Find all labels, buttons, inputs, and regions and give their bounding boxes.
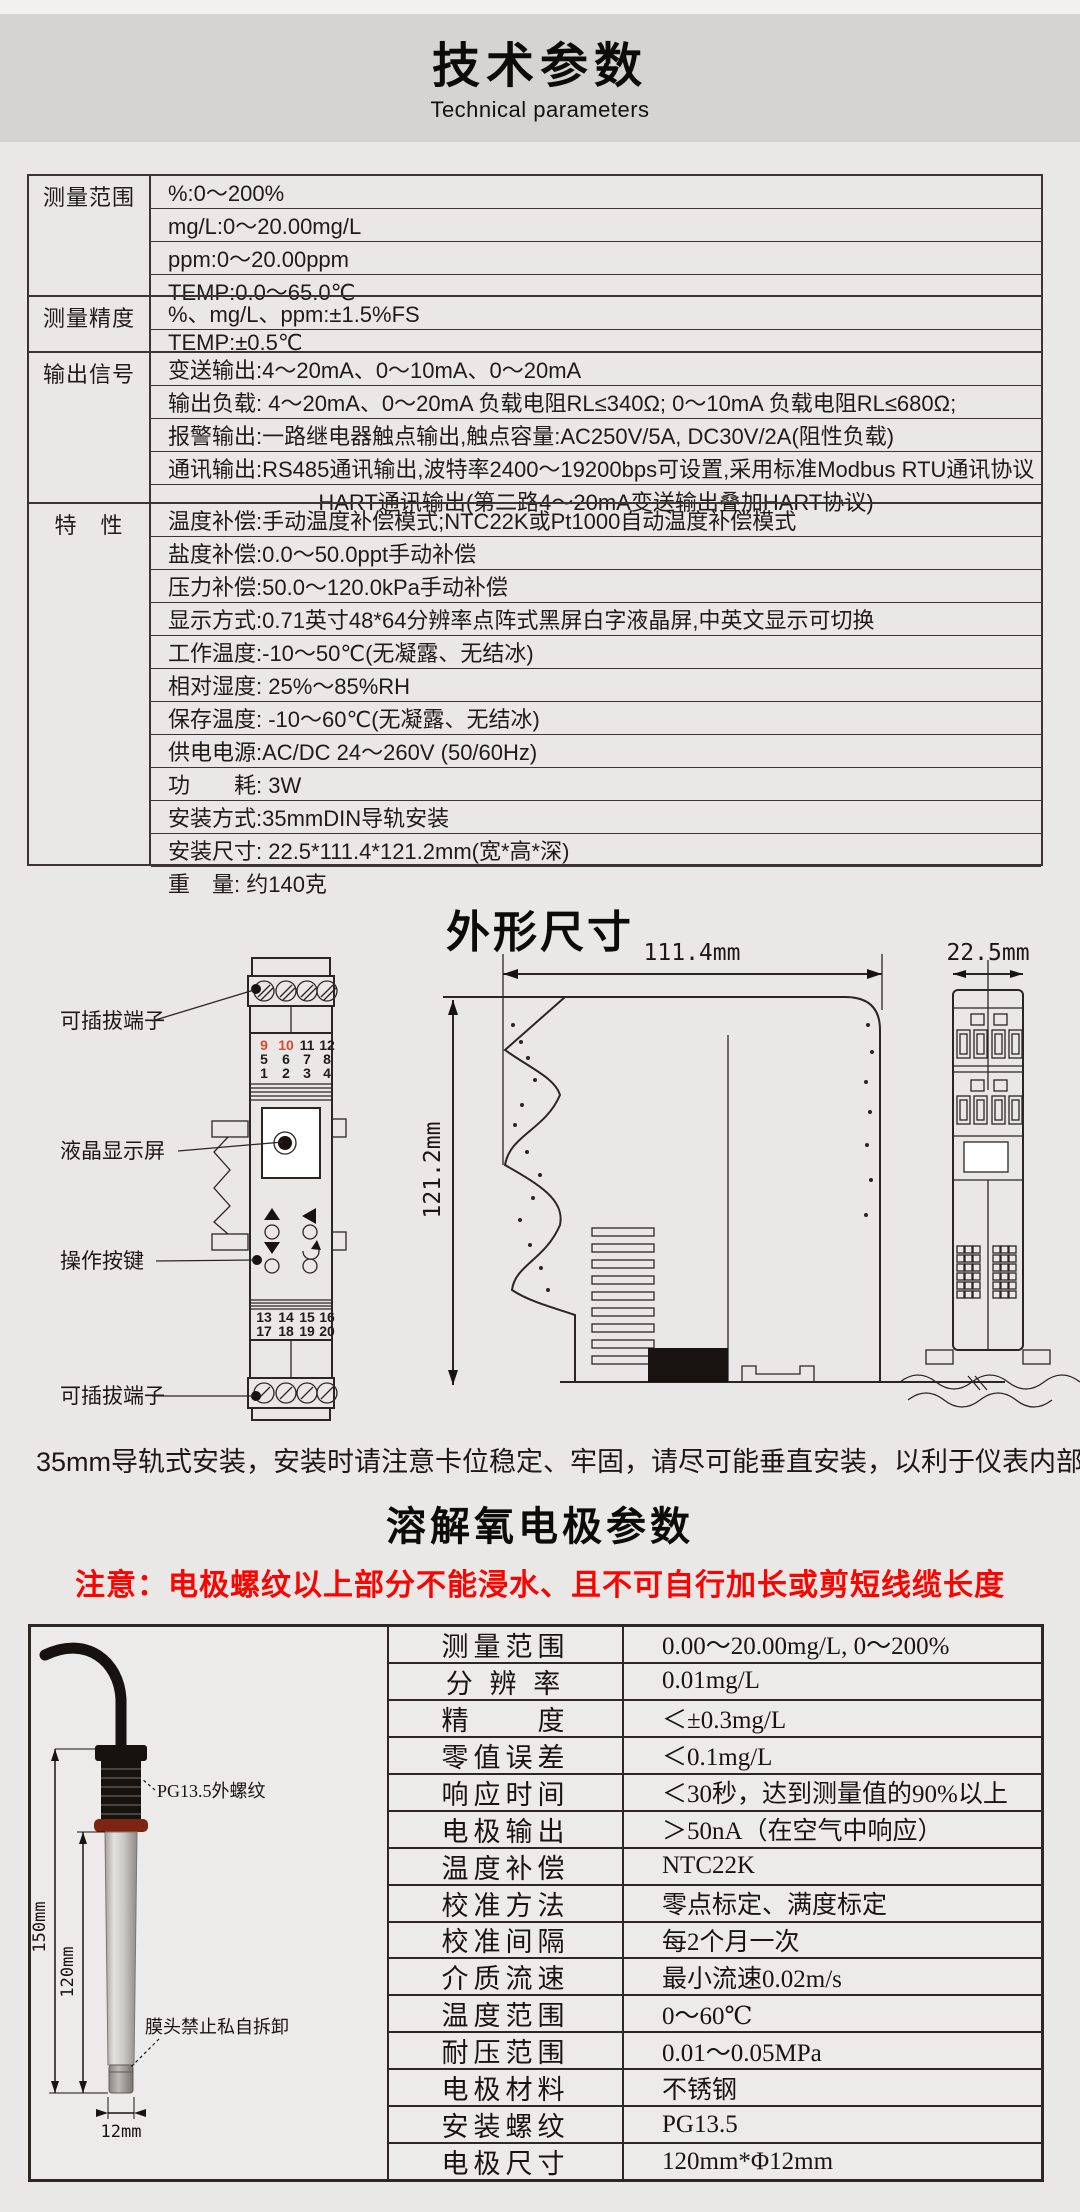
electrode-row: 电极尺寸120mm*Φ12mm xyxy=(389,2142,1041,2179)
down-arrow-icon xyxy=(264,1242,280,1254)
probe-length-label: 150mm xyxy=(31,1901,50,1952)
vent-grid xyxy=(957,1246,1016,1298)
electrode-param-value: 0.00～20.00mg/L, 0～200% xyxy=(624,1627,1041,1662)
spec-group-label: 测量范围 xyxy=(29,176,151,295)
down-button xyxy=(265,1259,279,1273)
terminal-number: 4 xyxy=(323,1065,331,1081)
terminal-number: 19 xyxy=(299,1323,315,1339)
din-clip xyxy=(648,1348,728,1382)
enclosure-front-edge xyxy=(505,997,575,1382)
probe-cable xyxy=(45,1648,121,1749)
electrode-param-label: 电极材料 xyxy=(389,2070,624,2105)
technical-spec-table: 测量范围%:0～200%mg/L:0～20.00mg/Lppm:0～20.00p… xyxy=(27,174,1043,866)
electrode-param-value: 0.01～0.05MPa xyxy=(624,2033,1041,2068)
spec-row: 显示方式:0.71英寸48*64分辨率点阵式黑屏白字液晶屏,中英文显示可切换 xyxy=(151,602,1041,635)
spec-row: 功 耗: 3W xyxy=(151,767,1041,800)
electrode-row: 介质流速最小流速0.02m/s xyxy=(389,1957,1041,1994)
width-dimension-label: 111.4mm xyxy=(644,940,741,966)
electrode-param-label: 温度补偿 xyxy=(389,1849,624,1884)
thread-annotation: PG13.5外螺纹 xyxy=(157,1781,266,1801)
electrode-param-label: 安装螺纹 xyxy=(389,2107,624,2142)
spec-row: %、mg/L、ppm:±1.5%FS xyxy=(151,297,1041,329)
spec-row: mg/L:0～20.00mg/L xyxy=(151,208,1041,241)
probe-diameter-label: 12mm xyxy=(101,2122,142,2142)
electrode-row: 温度补偿NTC22K xyxy=(389,1847,1041,1884)
electrode-param-label: 电极尺寸 xyxy=(389,2144,624,2179)
probe-body-dimension: 120mm xyxy=(58,1832,105,2093)
rail-cross-section xyxy=(742,1366,814,1382)
electrode-param-label: 测量范围 xyxy=(389,1627,624,1662)
probe-body xyxy=(105,1832,137,2065)
probe-oring xyxy=(94,1819,148,1832)
datasheet-page: 技术参数 Technical parameters 测量范围%:0～200%mg… xyxy=(0,0,1080,2212)
electrode-row: 校准方法零点标定、满度标定 xyxy=(389,1884,1041,1921)
probe-thread xyxy=(95,1745,147,1819)
spec-row: 供电电源:AC/DC 24～260V (50/60Hz) xyxy=(151,734,1041,767)
electrode-row: 耐压范围0.01～0.05MPa xyxy=(389,2031,1041,2068)
spec-row: ppm:0～20.00ppm xyxy=(151,241,1041,274)
electrode-param-value: 最小流速0.02m/s xyxy=(624,1959,1041,1994)
top-view-drawing: 22.5mm xyxy=(900,940,1080,1407)
terminal-number: 2 xyxy=(282,1065,290,1081)
terminal-block-bottom xyxy=(248,1378,337,1420)
electrode-param-value: ＞50nA（在空气中响应） xyxy=(624,1812,1041,1847)
electrode-param-value: ＜30秒，达到测量值的90%以上 xyxy=(624,1775,1041,1810)
electrode-param-value: 120mm*Φ12mm xyxy=(624,2144,1041,2179)
electrode-param-label: 响应时间 xyxy=(389,1775,624,1810)
electrode-param-value: NTC22K xyxy=(624,1849,1041,1884)
electrode-warning: 注意：电极螺纹以上部分不能浸水、且不可自行加长或剪短线缆长度 xyxy=(0,1560,1080,1604)
label-lcd: 液晶显示屏 xyxy=(60,1140,165,1163)
enter-button xyxy=(303,1259,317,1273)
spec-group-label: 测量精度 xyxy=(29,297,151,351)
electrode-param-label: 分 辨 率 xyxy=(389,1664,624,1699)
spec-group-label: 输出信号 xyxy=(29,353,151,502)
electrode-param-label: 校准间隔 xyxy=(389,1923,624,1958)
probe-body-label: 120mm xyxy=(58,1946,78,1997)
electrode-param-label: 温度范围 xyxy=(389,1996,624,2031)
electrode-row: 安装螺纹PG13.5 xyxy=(389,2105,1041,2142)
spec-row: 输出负载: 4～20mA、0～20mA 负载电阻RL≤340Ω; 0～10mA … xyxy=(151,385,1041,418)
enclosure-rear-edge xyxy=(845,997,880,1382)
spec-row: %:0～200% xyxy=(151,176,1041,208)
spec-row: 温度补偿:手动温度补偿模式;NTC22K或Pt1000自动温度补偿模式 xyxy=(151,504,1041,536)
electrode-param-label: 精 度 xyxy=(389,1701,624,1736)
terminal-number: 17 xyxy=(256,1323,272,1339)
electrode-param-label: 校准方法 xyxy=(389,1886,624,1921)
electrode-param-value: 零点标定、满度标定 xyxy=(624,1886,1041,1921)
spec-row: 压力补偿:50.0～120.0kPa手动补偿 xyxy=(151,569,1041,602)
spec-row: 相对湿度: 25%～85%RH xyxy=(151,668,1041,701)
operation-buttons xyxy=(252,1208,321,1273)
electrode-row: 精 度＜±0.3mg/L xyxy=(389,1699,1041,1736)
terminal-number: 3 xyxy=(303,1065,311,1081)
header-band: 技术参数 Technical parameters xyxy=(0,14,1080,142)
dimension-drawings: 910111256781234 xyxy=(0,930,1080,1430)
terminal-numbers-top: 910111256781234 xyxy=(260,1037,335,1081)
spec-group-label: 特 性 xyxy=(29,504,151,864)
probe-diameter-dimension: 12mm xyxy=(96,2097,146,2142)
electrode-param-value: 不锈钢 xyxy=(624,2070,1041,2105)
up-arrow-icon xyxy=(264,1208,280,1220)
spec-row: 报警输出:一路继电器触点输出,触点容量:AC250V/5A, DC30V/2A(… xyxy=(151,418,1041,451)
terminal-number: 18 xyxy=(278,1323,294,1339)
page-title: 技术参数 xyxy=(0,26,1080,96)
spec-row: 重 量: 约140克 xyxy=(151,866,1041,899)
terminal-number: 20 xyxy=(319,1323,335,1339)
electrode-row: 分 辨 率0.01mg/L xyxy=(389,1662,1041,1699)
probe-length-dimension: 150mm xyxy=(31,1749,108,2093)
page-subtitle: Technical parameters xyxy=(0,97,1080,123)
electrode-rows: 测量范围0.00～20.00mg/L, 0～200%分 辨 率0.01mg/L精… xyxy=(389,1627,1041,2179)
detail-dots xyxy=(511,1023,874,1292)
spec-row: 通讯输出:RS485通讯输出,波特率2400～19200bps可设置,采用标准M… xyxy=(151,451,1041,484)
label-terminal-bottom: 可插拔端子 xyxy=(60,1385,165,1408)
rail-flange-right xyxy=(1023,1350,1050,1364)
electrode-param-value: 0～60℃ xyxy=(624,1996,1041,2031)
electrode-param-value: ＜0.1mg/L xyxy=(624,1738,1041,1773)
dimension-drawings-svg: 910111256781234 xyxy=(0,930,1080,1430)
hatch-band-lower xyxy=(250,1300,332,1309)
front-view-drawing: 910111256781234 xyxy=(60,958,346,1420)
electrode-row: 零值误差＜0.1mg/L xyxy=(389,1736,1041,1773)
electrode-param-label: 耐压范围 xyxy=(389,2033,624,2068)
electrode-param-label: 电极输出 xyxy=(389,1812,624,1847)
probe-drawing: 150mm 120mm 12mm xyxy=(31,1627,385,2180)
terminal-number: 1 xyxy=(260,1065,268,1081)
terminal-block-top xyxy=(248,958,337,1006)
spec-row: 安装尺寸: 22.5*111.4*121.2mm(宽*高*深) xyxy=(151,833,1041,866)
electrode-row: 响应时间＜30秒，达到测量值的90%以上 xyxy=(389,1773,1041,1810)
left-button xyxy=(303,1225,317,1239)
electrode-param-value: PG13.5 xyxy=(624,2107,1041,2142)
spec-row: 工作温度:-10～50℃(无凝露、无结冰) xyxy=(151,635,1041,668)
terminal-slots-lower xyxy=(957,1096,1022,1124)
hatch-band-upper xyxy=(250,1084,332,1100)
electrode-table: 150mm 120mm 12mm xyxy=(28,1624,1044,2182)
mounting-note: 35mm导轨式安装，安装时请注意卡位稳定、牢固，请尽可能垂直安装，以利于仪表内部… xyxy=(36,1440,1046,1479)
left-arrow-icon xyxy=(302,1208,316,1224)
spec-group-1: 测量精度%、mg/L、ppm:±1.5%FSTEMP:±0.5℃ xyxy=(29,295,1041,351)
top-strip xyxy=(0,0,1080,14)
electrode-param-label: 介质流速 xyxy=(389,1959,624,1994)
lcd-side-profile xyxy=(964,1142,1008,1172)
spec-group-0: 测量范围%:0～200%mg/L:0～20.00mg/Lppm:0～20.00p… xyxy=(29,176,1041,295)
electrode-row: 测量范围0.00～20.00mg/L, 0～200% xyxy=(389,1627,1041,1662)
electrode-param-label: 零值误差 xyxy=(389,1738,624,1773)
spec-row: 盐度补偿:0.0～50.0ppt手动补偿 xyxy=(151,536,1041,569)
electrode-row: 校准间隔每2个月一次 xyxy=(389,1921,1041,1958)
up-button xyxy=(265,1225,279,1239)
electrode-param-value: ＜±0.3mg/L xyxy=(624,1701,1041,1736)
spec-row: 安装方式:35mmDIN导轨安装 xyxy=(151,800,1041,833)
spec-group-3: 特 性温度补偿:手动温度补偿模式;NTC22K或Pt1000自动温度补偿模式盐度… xyxy=(29,502,1041,864)
electrode-param-value: 每2个月一次 xyxy=(624,1923,1041,1958)
probe-image-cell: 150mm 120mm 12mm xyxy=(31,1627,389,2179)
terminal-numbers-bottom: 1314151617181920 xyxy=(256,1309,335,1339)
break-line-2 xyxy=(908,1393,1052,1407)
label-terminal-top: 可插拔端子 xyxy=(60,1010,165,1033)
vent-slots xyxy=(592,1228,654,1364)
membrane-annotation: 膜头禁止私自拆卸 xyxy=(145,2017,289,2037)
height-dimension-label: 121.2mm xyxy=(420,1122,446,1219)
spec-row: 变送输出:4～20mA、0～10mA、0～20mA xyxy=(151,353,1041,385)
electrode-section-title: 溶解氧电极参数 xyxy=(0,1494,1080,1552)
rail-flange-left xyxy=(926,1350,953,1364)
side-view-drawing: 111.4mm 121.2mm xyxy=(420,940,1005,1390)
label-buttons: 操作按键 xyxy=(60,1250,144,1273)
spec-row: 保存温度: -10～60℃(无凝露、无结冰) xyxy=(151,701,1041,734)
electrode-row: 电极材料不锈钢 xyxy=(389,2068,1041,2105)
electrode-row: 电极输出＞50nA（在空气中响应） xyxy=(389,1810,1041,1847)
terminal-slots-upper xyxy=(957,1030,1022,1058)
electrode-row: 温度范围0～60℃ xyxy=(389,1994,1041,2031)
electrode-param-value: 0.01mg/L xyxy=(624,1664,1041,1699)
spec-group-2: 输出信号变送输出:4～20mA、0～10mA、0～20mA输出负载: 4～20m… xyxy=(29,351,1041,502)
